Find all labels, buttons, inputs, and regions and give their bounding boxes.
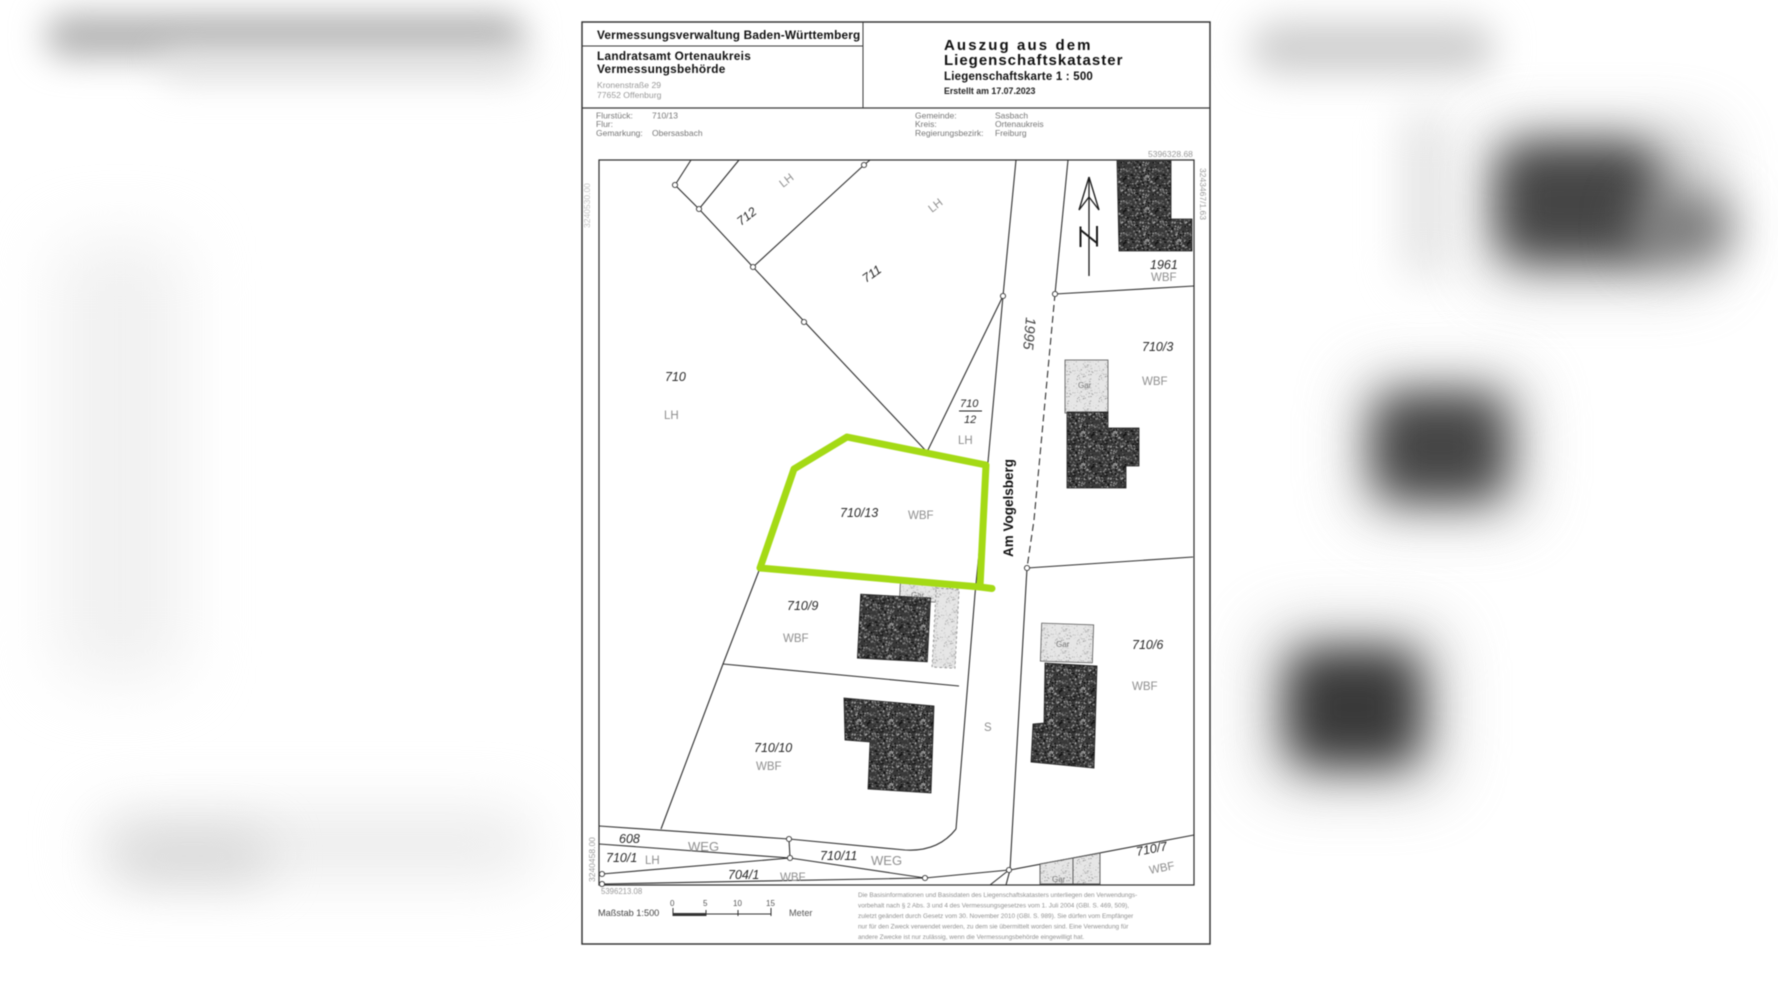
svg-text:Meter: Meter [789,908,813,918]
svg-text:Landratsamt Ortenaukreis: Landratsamt Ortenaukreis [597,49,751,63]
svg-text:Erstellt am 17.07.2023: Erstellt am 17.07.2023 [944,86,1036,96]
svg-text:710/13: 710/13 [840,506,878,520]
svg-text:LH: LH [645,855,660,867]
svg-text:710/10: 710/10 [754,741,792,755]
svg-text:704/1: 704/1 [728,868,759,882]
svg-text:Liegenschaftskarte 1 : 500: Liegenschaftskarte 1 : 500 [944,71,1093,83]
svg-text:Kronenstraße 29: Kronenstraße 29 [597,80,661,90]
svg-text:1995: 1995 [1019,317,1038,351]
svg-text:710/6: 710/6 [1132,638,1163,652]
svg-text:77652 Offenburg: 77652 Offenburg [597,90,662,100]
svg-text:Am Vogelsberg: Am Vogelsberg [1001,459,1016,557]
svg-text:Regierungsbezirk:: Regierungsbezirk: [915,128,984,138]
svg-text:710/11: 710/11 [820,849,857,863]
svg-text:andere Zwecke ist nur zulässig: andere Zwecke ist nur zulässig, wenn die… [858,934,1085,941]
svg-text:LH: LH [664,410,679,422]
svg-text:WBF: WBF [1142,376,1168,388]
svg-text:Gar: Gar [1056,640,1070,649]
svg-text:710/9: 710/9 [787,599,818,613]
svg-text:vorbehalt nach § 2 Abs. 3 und: vorbehalt nach § 2 Abs. 3 und 4 des Verm… [858,903,1129,910]
svg-text:WBF: WBF [780,872,806,884]
svg-text:Gemarkung:: Gemarkung: [596,128,643,138]
svg-text:WBF: WBF [1132,681,1158,693]
svg-text:5396213.08: 5396213.08 [601,887,642,896]
svg-text:Gar: Gar [1052,875,1066,884]
svg-text:5396328.68: 5396328.68 [1148,149,1193,159]
svg-text:0: 0 [670,899,675,908]
svg-text:nur für den Zweck verwendet we: nur für den Zweck verwendet werden, zu d… [858,924,1129,931]
svg-text:3240530.00: 3240530.00 [582,183,592,228]
svg-text:zuletzt geändert durch Gesetz: zuletzt geändert durch Gesetz vom 30. No… [858,913,1134,920]
svg-text:WBF: WBF [756,761,782,773]
svg-text:710/13: 710/13 [652,111,678,121]
svg-text:710: 710 [665,370,686,384]
svg-text:WEG: WEG [871,853,902,868]
svg-text:WBF: WBF [783,633,809,645]
svg-text:710/1: 710/1 [606,851,637,865]
svg-text:Gar: Gar [911,591,925,600]
svg-text:Obersasbach: Obersasbach [652,128,703,138]
svg-text:LH: LH [958,435,973,447]
svg-text:WEG: WEG [688,839,719,854]
svg-text:S: S [984,722,992,734]
svg-text:710: 710 [960,398,979,410]
svg-text:WBF: WBF [1151,272,1177,284]
svg-text:608: 608 [619,832,640,846]
svg-text:Vermessungsverwaltung Baden-Wü: Vermessungsverwaltung Baden-Württemberg [597,28,860,42]
svg-text:12: 12 [964,414,976,426]
svg-text:10: 10 [733,899,742,908]
svg-text:Liegenschaftskataster: Liegenschaftskataster [944,52,1123,69]
svg-text:Die Basisinformationen und Bas: Die Basisinformationen und Basisdaten de… [858,892,1137,899]
svg-text:Freiburg: Freiburg [995,128,1027,138]
svg-text:WBF: WBF [908,510,934,522]
svg-text:Gar: Gar [1078,381,1092,390]
svg-text:710/3: 710/3 [1142,340,1173,354]
svg-text:3240458.00: 3240458.00 [587,837,597,882]
svg-text:3243467/1.63: 3243467/1.63 [1198,168,1208,220]
svg-text:Vermessungsbehörde: Vermessungsbehörde [597,62,726,76]
svg-text:1961: 1961 [1150,258,1178,272]
svg-text:5: 5 [703,899,708,908]
svg-text:Maßstab 1:500: Maßstab 1:500 [598,908,659,918]
svg-text:15: 15 [766,899,775,908]
